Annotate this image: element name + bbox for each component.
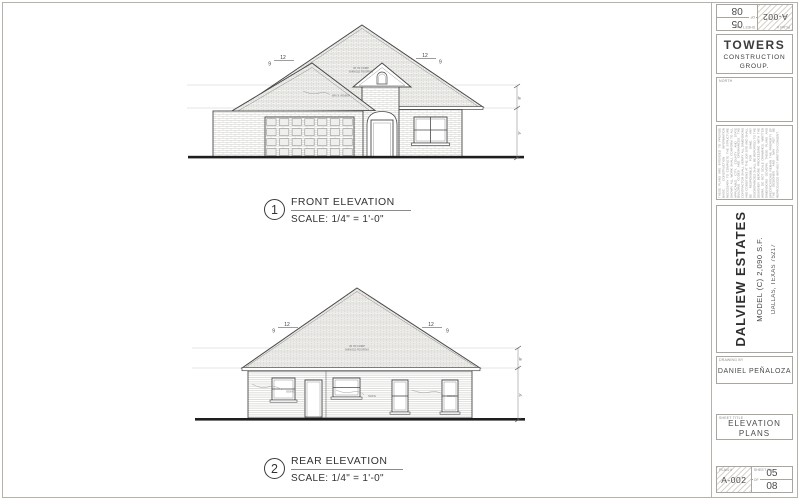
- company-name-line3: GROUP.: [740, 63, 770, 70]
- pitch-run-label: 12: [280, 55, 286, 61]
- sheet-number-cell: SHEET No 05 OF: [717, 17, 757, 30]
- rear-window-2: [331, 378, 362, 399]
- company-name-line2: CONSTRUCTION: [724, 54, 786, 61]
- rear-elevation-drawing: 12 9 12 9 30 YR COMP SHINGLE ROOFING SID…: [190, 278, 535, 433]
- disclaimer-text: THESE PLANS ARE INTENDED TO PROVIDE BASI…: [718, 128, 791, 198]
- drawing-by-value: DANIEL PEÑALOZA: [718, 368, 791, 375]
- plan-number-cell: PLAN # A-002: [757, 5, 792, 30]
- garage-door: [265, 117, 354, 157]
- pitch-run-label: 12: [428, 322, 434, 328]
- front-elevation-drawing: 12 9 12 9 30 YR COMP SHINGLE ROOFING BRI…: [185, 22, 530, 162]
- north-label: NORTH: [719, 79, 732, 83]
- front-ground-line: [188, 156, 524, 159]
- sheet-number-label: SHEET No: [754, 468, 773, 472]
- figure-title: REAR ELEVATION: [291, 455, 403, 470]
- plan-number-block-rotated: PLAN # A-002 SHEET No 05 OF 08: [716, 4, 793, 31]
- drawing-sheet: 12 9 12 9 30 YR COMP SHINGLE ROOFING BRI…: [0, 0, 800, 500]
- plan-number-label: PLAN #: [777, 25, 790, 29]
- pitch-rise-label: 9: [272, 329, 275, 335]
- front-entry-door: [367, 112, 397, 158]
- plan-number: A-002: [721, 475, 746, 485]
- figure-number-badge: 2: [264, 458, 285, 479]
- pitch-rise-label: 9: [446, 329, 449, 335]
- company-block: TOWERS CONSTRUCTION GROUP.: [716, 34, 793, 74]
- pitch-run-label: 12: [422, 53, 428, 59]
- project-info-block: DALVIEW ESTATES MODEL (C) 2,090 S.F. DAL…: [716, 205, 793, 353]
- rear-elevation-label: 2 REAR ELEVATION SCALE: 1/4" = 1'-0": [264, 455, 403, 484]
- roof-note: 30 YR COMP: [353, 66, 369, 70]
- dim-label: 8': [517, 96, 522, 99]
- rear-hip-roof: [242, 288, 480, 371]
- project-address: DALLAS, TEXAS 75217: [771, 244, 777, 314]
- front-elevation-label: 1 FRONT ELEVATION SCALE: 1/4" = 1'-0": [264, 196, 411, 225]
- plan-number-cell: PLAN # A-002: [717, 467, 752, 492]
- disclaimer-box: THESE PLANS ARE INTENDED TO PROVIDE BASI…: [716, 125, 793, 200]
- plan-number-block: PLAN # A-002 SHEET No 05 OF 08: [716, 466, 793, 493]
- titleblock-divider: [711, 2, 712, 498]
- sheet-number-cell: SHEET No 05 OF: [752, 467, 792, 480]
- drawing-by-box: DRAWING BY DANIEL PEÑALOZA: [716, 356, 793, 384]
- of-label: OF: [753, 478, 760, 482]
- dim-label: 9': [518, 393, 523, 396]
- dim-label: 8': [518, 357, 523, 360]
- of-label: OF: [749, 15, 756, 19]
- pitch-rise-label: 9: [268, 62, 271, 68]
- rear-window-3: [390, 380, 410, 414]
- sheet-title-value: ELEVATION PLANS: [727, 419, 782, 438]
- siding-note: SIDING: [368, 395, 376, 398]
- roof-note: 30 YR COMP: [349, 344, 365, 348]
- rear-door: [305, 380, 322, 417]
- rear-ground-line: [195, 418, 525, 421]
- company-name: TOWERS: [724, 38, 785, 52]
- figure-scale: SCALE: 1/4" = 1'-0": [291, 473, 403, 484]
- sheet-number-label: SHEET No: [737, 25, 756, 29]
- drawing-by-label: DRAWING BY: [719, 358, 743, 362]
- project-name: DALVIEW ESTATES: [733, 211, 748, 347]
- pitch-run-label: 12: [284, 322, 290, 328]
- rear-dimension-line: 8' 9': [515, 346, 523, 422]
- dim-label: 9': [517, 131, 522, 134]
- roof-note: SHINGLE ROOFING: [345, 347, 369, 351]
- titleblock: PLAN # A-002 SHEET No 05 OF 08 TOWERS CO…: [714, 0, 797, 500]
- roof-note: SHINGLE ROOFING: [349, 69, 373, 73]
- pitch-rise-label: 9: [439, 60, 442, 66]
- plan-number: A-002: [763, 13, 788, 23]
- front-right-window: [412, 117, 450, 146]
- figure-number-badge: 1: [264, 199, 285, 220]
- figure-title: FRONT ELEVATION: [291, 196, 411, 211]
- north-arrow-box: NORTH: [716, 77, 793, 122]
- front-dimension-line: 8' 9': [514, 84, 522, 160]
- sheet-title-box: SHEET TITLE ELEVATION PLANS: [716, 414, 793, 440]
- figure-scale: SCALE: 1/4" = 1'-0": [291, 214, 411, 225]
- project-model: MODEL (C) 2,090 S.F.: [755, 237, 764, 322]
- plan-number-label: PLAN #: [719, 468, 732, 472]
- veneer-note: BRICK VENEER: [332, 95, 350, 98]
- siding-note: SIDING: [447, 395, 455, 398]
- siding-note: SIDING: [286, 391, 294, 394]
- sheet-title-label: SHEET TITLE: [719, 416, 743, 420]
